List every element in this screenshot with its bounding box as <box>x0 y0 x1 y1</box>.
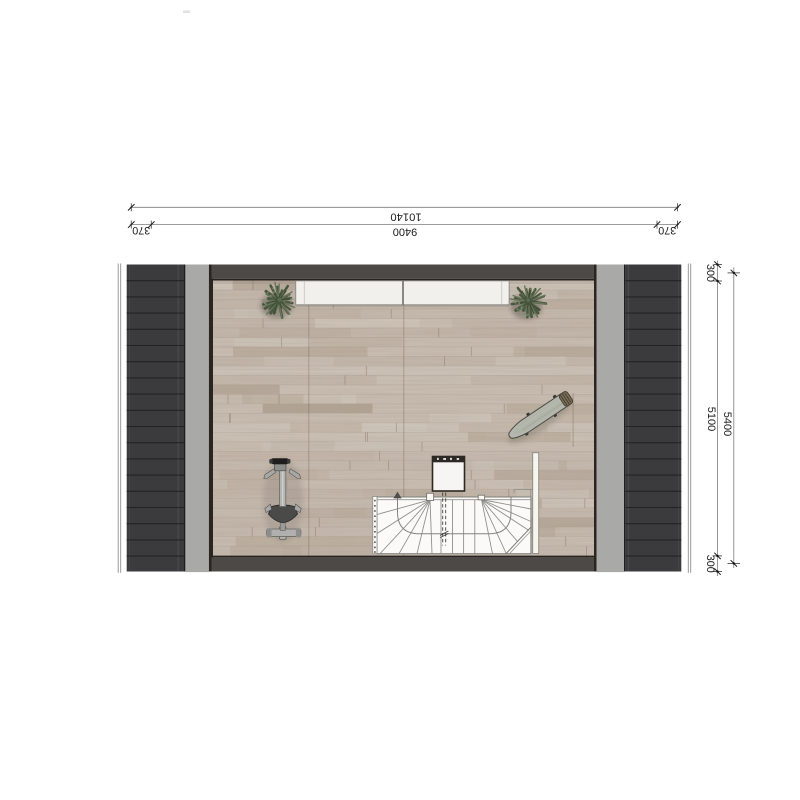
svg-text:370: 370 <box>132 224 150 236</box>
svg-text:5400: 5400 <box>721 412 733 436</box>
svg-text:9400: 9400 <box>393 226 417 238</box>
svg-text:370: 370 <box>658 224 676 236</box>
svg-text:5100: 5100 <box>705 407 717 431</box>
svg-text:300: 300 <box>704 555 716 573</box>
svg-text:300: 300 <box>704 264 716 282</box>
svg-text:10140: 10140 <box>390 211 421 223</box>
